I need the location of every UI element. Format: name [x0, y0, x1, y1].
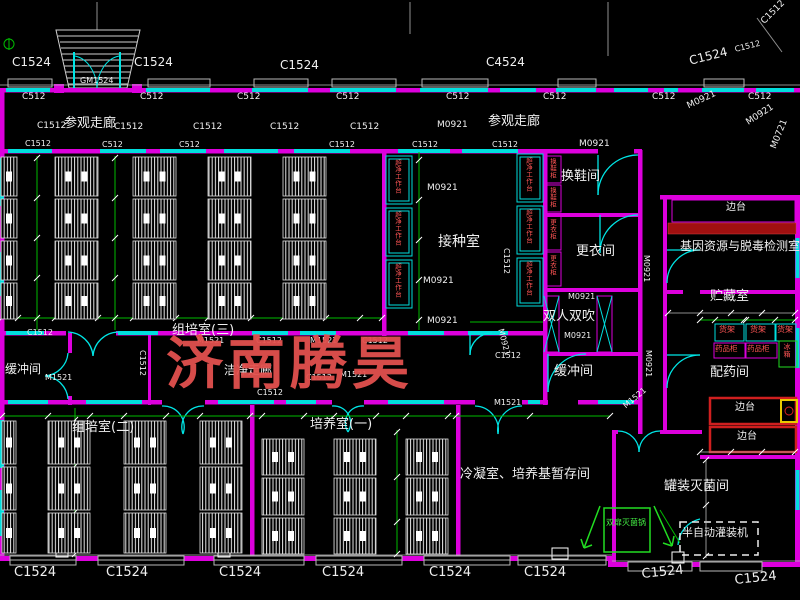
equipment-label-bench: 边台 [735, 403, 755, 413]
equipment-label-sterilizer: 双扉灭菌锅 [606, 519, 646, 527]
window-code: C4524 [486, 56, 525, 68]
window-code: C1524 [14, 566, 56, 579]
equipment-label-wardrobe: 更衣柜 [549, 255, 556, 276]
room-label-dressing: 更衣间 [576, 245, 615, 258]
door-code: M0921 [644, 350, 652, 377]
room-label-buffer: 缓冲间 [554, 365, 593, 378]
air-shower-units [544, 296, 612, 352]
equipment-label-shoe-cabinet: 换鞋柜 [549, 158, 556, 179]
room-label-shoe-change: 换鞋间 [561, 170, 600, 183]
equipment-label-bench: 边台 [726, 203, 746, 213]
door-code: M0921 [427, 184, 458, 193]
window-code: C1524 [219, 566, 261, 579]
window-code: C1524 [322, 566, 364, 579]
window-code: C512 [748, 93, 771, 102]
window-code: C1512 [193, 123, 222, 132]
room-label-air-shower: 双人双吹 [543, 310, 595, 323]
room-label-buffer: 缓冲间 [5, 363, 41, 375]
equipment-label-shelf: 货架 [777, 326, 793, 334]
equipment-label-clean-bench: 超净工作台 [394, 159, 401, 194]
window-code: C1512 [329, 141, 355, 149]
room-label-visit-corridor: 参观走廊 [488, 115, 540, 128]
window-code: C1512 [270, 123, 299, 132]
door-code: M1521 [494, 399, 521, 407]
equipment-label-clean-bench: 超净工作台 [394, 263, 401, 298]
floor-plan: C1524GM1524C1524C1524C4524C1524C1512C151… [0, 0, 800, 600]
equipment-label-medicine-cabinet: 药品柜 [747, 345, 770, 353]
room-label-condensation-storage: 冷凝室、培养基暂存间 [460, 468, 590, 481]
window-code: C1524 [280, 59, 319, 71]
window-code: C1512 [138, 350, 146, 376]
axis-bubble [4, 38, 14, 50]
window-code: C512 [237, 93, 260, 102]
equipment-label-shoe-cabinet: 换鞋柜 [549, 187, 556, 208]
window-code: C512 [102, 141, 123, 149]
equipment-label-clean-bench: 超净工作台 [525, 157, 532, 192]
equipment-label-bench: 边台 [737, 432, 757, 442]
room-label-canning-sterilization: 罐装灭菌间 [664, 480, 729, 493]
window-code: C1524 [524, 566, 566, 579]
window-code: C512 [179, 141, 200, 149]
sink [781, 400, 797, 422]
room-label-tissue-culture-2: 组培室(二) [72, 421, 134, 434]
equipment-label-shelf: 货架 [750, 326, 766, 334]
window-code: C512 [140, 93, 163, 102]
window-code: C512 [22, 93, 45, 102]
floor-plan-drawing [0, 0, 800, 600]
watermark: 济南腾昊 [166, 336, 414, 393]
window-code: C1512 [350, 123, 379, 132]
sink-symbol [785, 407, 793, 415]
door-code: M0921 [568, 293, 595, 301]
door-code: M0921 [564, 332, 591, 340]
equipment-label-clean-bench: 超净工作台 [525, 261, 532, 296]
window-code: C1524 [134, 56, 173, 68]
door-code: M1521 [45, 374, 72, 382]
room-label-inoculation: 接种室 [438, 235, 480, 249]
room-label-gene-resource: 基因资源与脱毒检测室 [680, 240, 800, 252]
equipment-label-wardrobe: 更衣柜 [549, 219, 556, 240]
sterilizer [581, 506, 674, 552]
door-code: M0921 [427, 317, 458, 326]
red-bench-band [668, 223, 796, 234]
equipment-label-fridge: 冰箱 [783, 343, 790, 358]
window-code: C512 [652, 93, 675, 102]
room-label-culture-1: 培养室(一) [310, 418, 372, 431]
window-code: C512 [446, 93, 469, 102]
door-code: M0921 [423, 277, 454, 286]
door-code: M0921 [437, 121, 468, 130]
door-code: M0921 [642, 255, 650, 282]
equipment-label-filling-machine: 半自动灌装机 [682, 527, 748, 538]
clean-benches [386, 154, 543, 308]
window-code: C1512 [495, 352, 521, 360]
equipment-label-shelf: 货架 [719, 326, 735, 334]
window-code: C1512 [412, 141, 438, 149]
window-code: C1512 [25, 140, 51, 148]
window-code: C1524 [106, 566, 148, 579]
door-code: GM1524 [80, 77, 113, 85]
windows [0, 88, 800, 536]
window-code: C1512 [27, 329, 53, 337]
room-label-visit-corridor: 参观走廊 [64, 117, 116, 130]
window-code: C512 [336, 93, 359, 102]
window-code: C1512 [502, 248, 510, 274]
window-code: C1512 [114, 123, 143, 132]
window-code: C1524 [429, 566, 471, 579]
window-code: C1512 [492, 141, 518, 149]
centerlines [97, 2, 782, 56]
equipment-label-medicine-cabinet: 药品柜 [715, 345, 738, 353]
room-label-storage: 贮藏室 [710, 290, 749, 303]
equipment-label-clean-bench: 超净工作台 [525, 209, 532, 244]
equipment-label-clean-bench: 超净工作台 [394, 211, 401, 246]
window-code: C512 [543, 93, 566, 102]
door-code: M0921 [579, 140, 610, 149]
room-label-dispensing: 配药间 [710, 366, 749, 379]
window-code: C1524 [12, 56, 51, 68]
window-code: C1512 [37, 122, 66, 131]
